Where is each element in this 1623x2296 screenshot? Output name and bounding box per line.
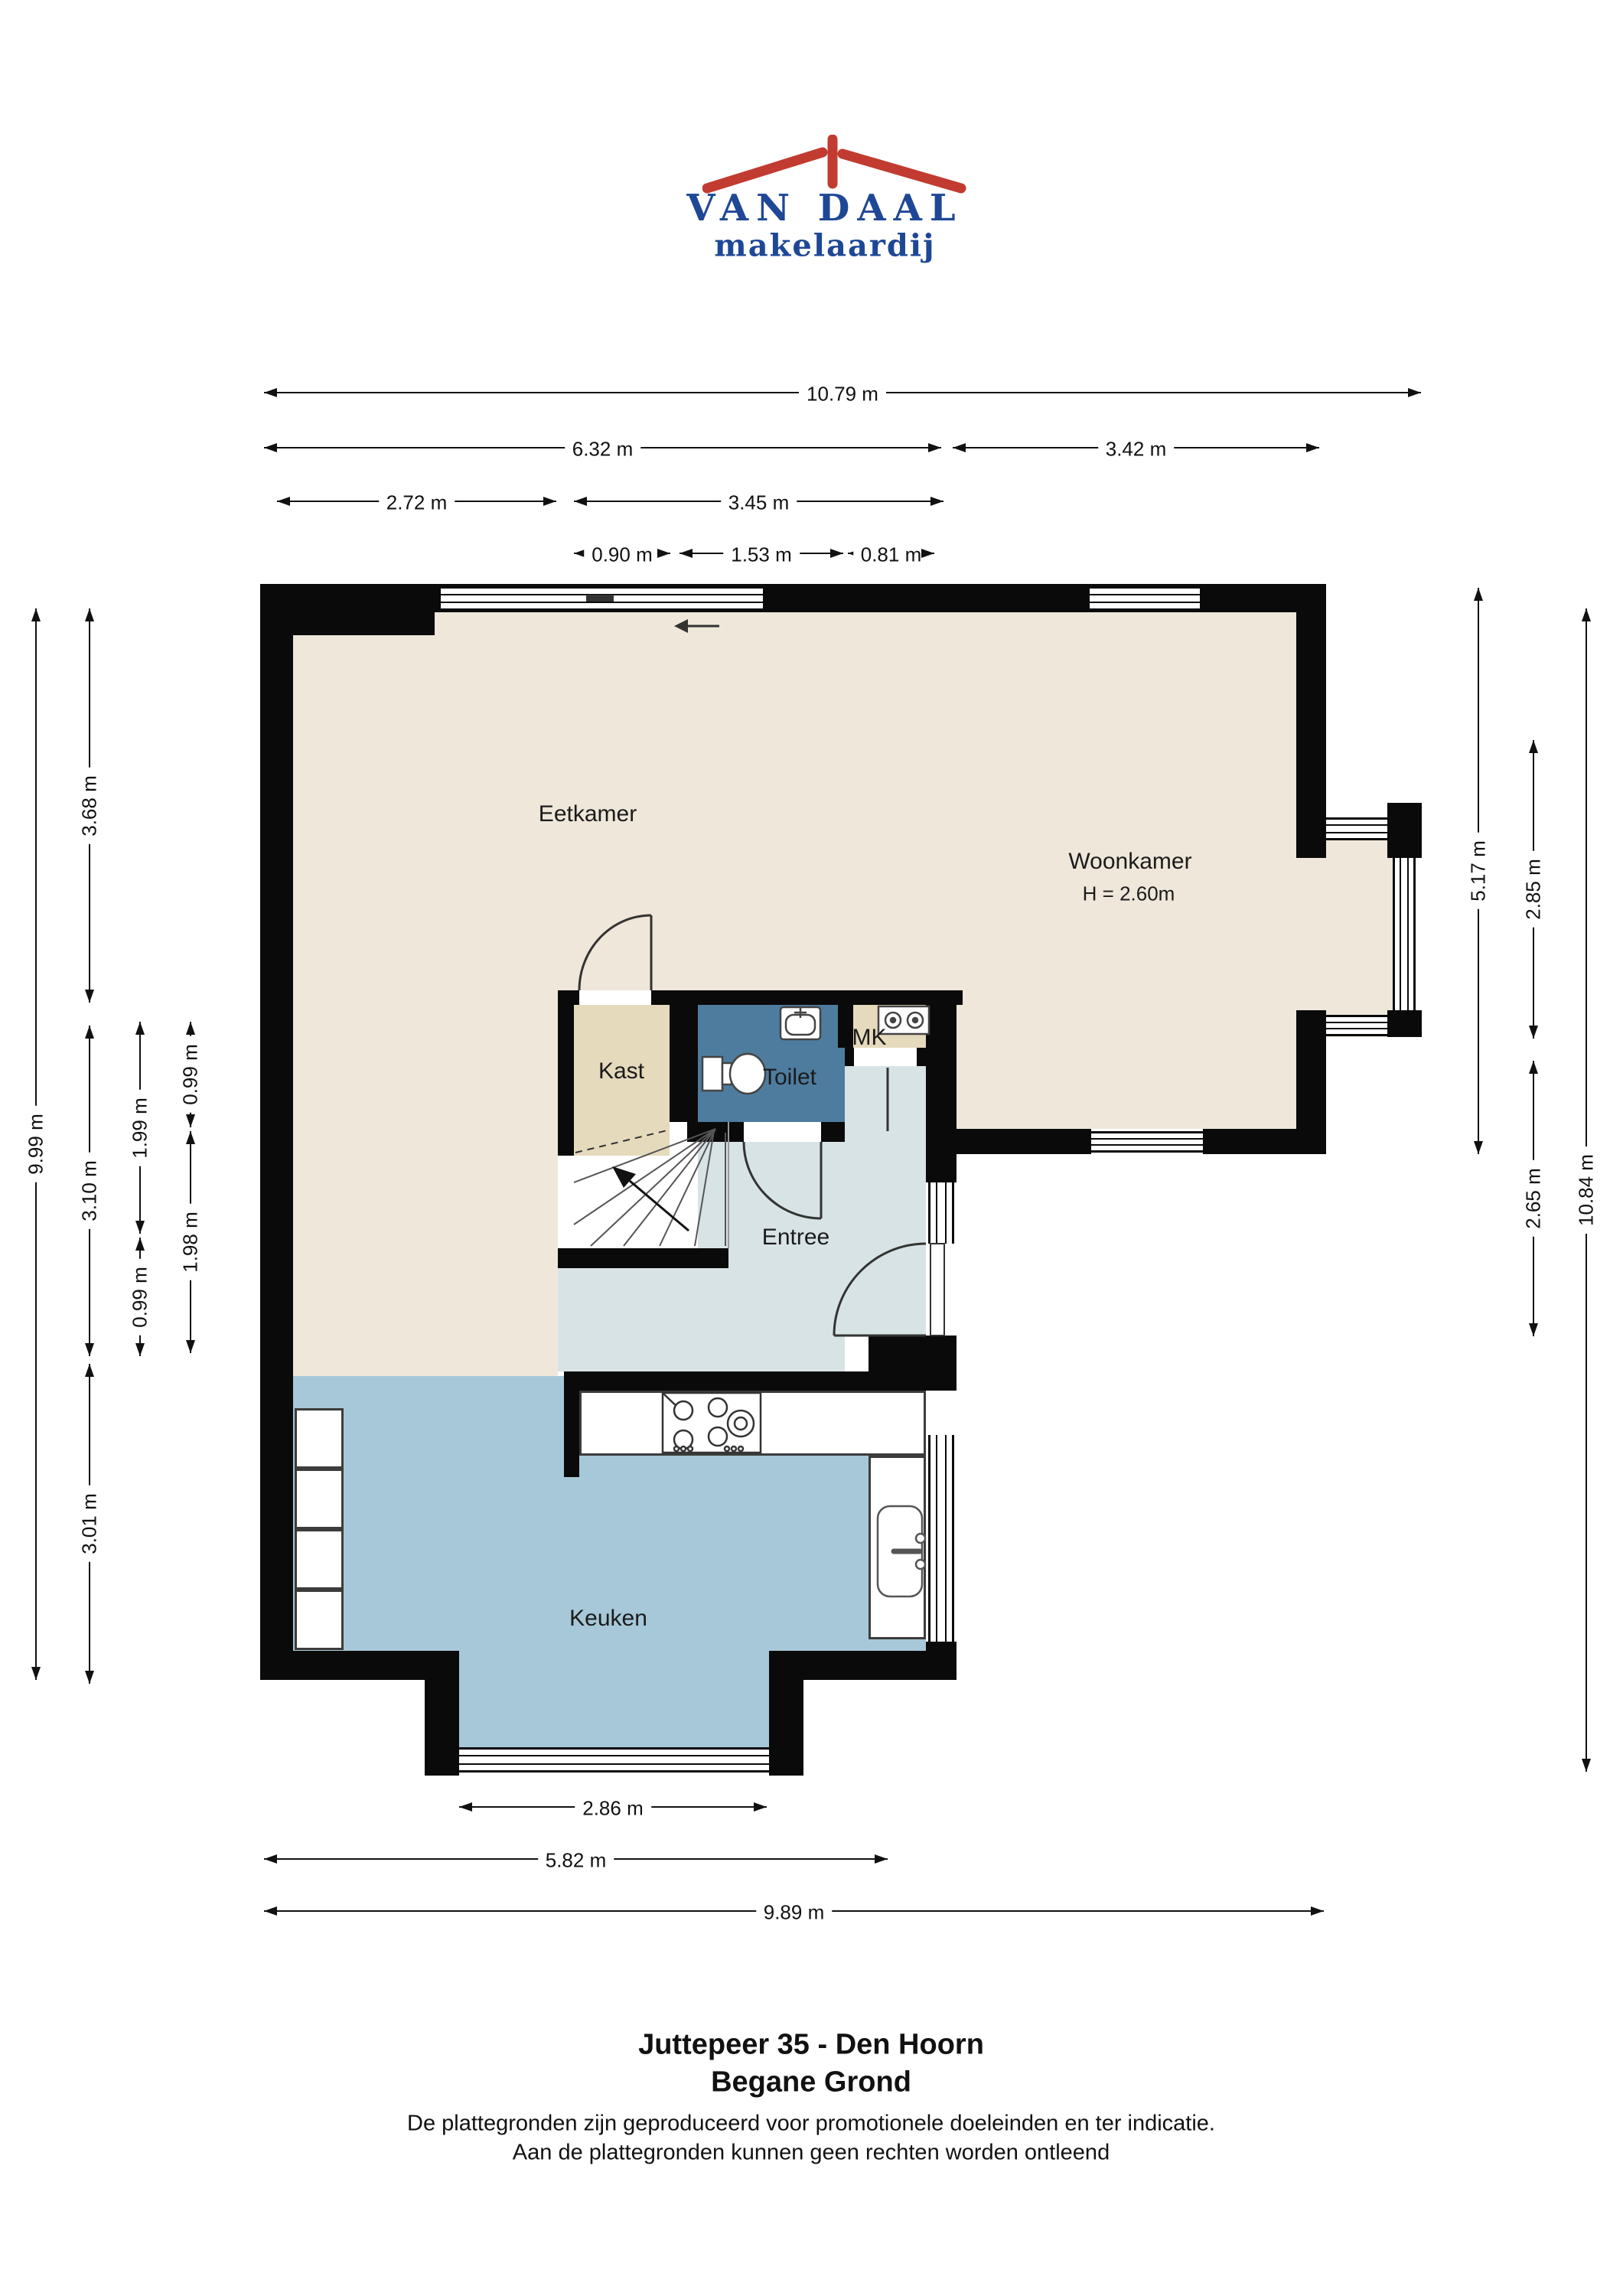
floor-woonkamer-lower [957,990,1296,1129]
dim-top-left: 6.32 m [264,447,941,448]
window-top-sliding-door [441,586,763,611]
wall-bay-corner-bottom [1387,1010,1422,1037]
dim-left-mid: 3.10 m [89,1026,90,1356]
wall-toilet-bottom-b [821,1122,845,1142]
wall-bay-corner-top [1387,803,1422,858]
dim-inner-right-bottom-label: 1.98 m [178,1204,204,1280]
dim-bottom-mid: 5.82 m [264,1858,888,1860]
dim-left-total: 9.99 m [35,608,37,1680]
dim-right-upper: 2.85 m [1533,740,1534,1039]
plan-title: Juttepeer 35 - Den Hoorn [638,2029,984,2062]
window-top-right [1090,586,1200,611]
kitchen-cabinet-4 [295,1590,344,1650]
wall-bottom-left [260,1651,459,1680]
wall-toilet-mk-divider [838,1005,853,1048]
window-kitchen-bay [459,1747,769,1773]
dim-toilet-width: 1.53 m [680,553,843,554]
dim-bottom-mid-label: 5.82 m [538,1848,614,1874]
dim-left-total-label: 9.99 m [24,1106,49,1182]
logo-tagline: makelaardij [714,228,935,264]
wall-right-upper [1296,584,1326,858]
dim-toilet-width-label: 1.53 m [723,543,800,568]
dim-kast-width-label: 0.90 m [584,543,660,568]
window-entree-sidelight [928,1182,954,1244]
wall-entree-right-upper [926,990,957,1182]
plan-subtitle: Begane Grond [711,2066,911,2099]
wall-bottom-right [769,1651,957,1680]
dim-inner-left-top: 1.99 m [139,1022,141,1234]
wall-kitchen-top [564,1371,957,1391]
dim-inner-left-bottom: 0.99 m [139,1238,141,1356]
wall-kitchenbay-stub-left [425,1680,459,1776]
dim-inner-right-bottom: 1.98 m [190,1131,191,1353]
wall-kast-left [558,990,574,1156]
dim-bottom-total: 9.89 m [264,1910,1324,1912]
dim-left-bottom-label: 3.01 m [77,1486,103,1562]
floor-plan: VAN DAAL makelaardij [0,0,1623,2296]
dim-middle-width-label: 3.45 m [721,491,797,516]
dim-right-top: 5.17 m [1478,588,1479,1154]
dim-top-total-label: 10.79 m [799,382,886,407]
dim-bottom-bay-label: 2.86 m [575,1796,651,1821]
floor-keuken-bay [459,1651,769,1749]
dim-top-total: 10.79 m [264,392,1421,393]
wall-left [260,584,293,1680]
dim-right-total: 10.84 m [1586,608,1587,1772]
window-woonkamer-south [1091,1131,1203,1153]
dim-inner-left-bottom-label: 0.99 m [128,1259,153,1336]
dim-inner-right-top: 0.99 m [190,1022,191,1127]
window-bay-step [1326,817,1387,840]
room-label-entree: Entree [762,1225,829,1251]
wall-entree-se-corner [869,1336,957,1371]
room-label-toilet: Toilet [763,1065,816,1091]
floor-entree-right [845,1066,926,1336]
window-bay-side [1393,858,1416,1010]
kitchen-cabinet-2 [295,1469,344,1529]
dim-right-lower-label: 2.65 m [1521,1160,1546,1237]
room-label-mk: MK [852,1025,887,1051]
kitchen-cabinet-1 [295,1408,344,1469]
dim-right-top-label: 5.17 m [1466,833,1491,909]
disclaimer-line-1: De plattegronden zijn geproduceerd voor … [407,2112,1215,2137]
wall-stairs-bottom [558,1248,728,1268]
dim-right-upper-label: 2.85 m [1521,851,1546,928]
room-label-woonkamer: Woonkamer [1068,849,1191,875]
room-label-woonkamer-height: H = 2.60m [1083,882,1175,906]
dim-bottom-bay: 2.86 m [459,1806,767,1808]
kitchen-cabinet-3 [295,1529,344,1590]
wall-woonkamer-bottom-right [1203,1129,1326,1154]
window-bay-bottom [1326,1015,1387,1036]
dim-top-right-label: 3.42 m [1098,437,1175,462]
dim-top-right: 3.42 m [953,447,1319,448]
floor-living-main [293,612,1296,990]
logo-name: VAN DAAL [686,187,963,230]
dim-middle-width: 3.45 m [574,501,943,502]
floor-toilet [698,1005,845,1122]
dim-left-mid-label: 3.10 m [77,1153,103,1229]
wall-toilet-left [670,1005,698,1122]
dim-eetkamer-width-label: 2.72 m [379,491,455,516]
wall-mk-bottom-b [917,1048,926,1066]
dim-top-left-label: 6.32 m [565,437,641,462]
floor-entree-left [558,1268,698,1371]
room-label-keuken: Keuken [569,1606,647,1632]
kitchen-counter-top [579,1391,926,1456]
wall-block-top-b [651,990,963,1005]
dim-right-total-label: 10.84 m [1574,1146,1599,1234]
wall-kitchenbay-stub-right [769,1680,803,1776]
disclaimer-line-2: Aan de plattegronden kunnen geen rechten… [513,2141,1110,2166]
dim-kast-width: 0.90 m [574,553,670,554]
room-label-eetkamer: Eetkamer [539,801,637,827]
dim-inner-right-top-label: 0.99 m [178,1036,204,1113]
floor-eetkamer-lower [293,990,558,1376]
dim-left-top: 3.68 m [89,608,90,1003]
wall-toilet-bottom-a [687,1122,744,1142]
dim-left-bottom: 3.01 m [89,1364,90,1684]
dim-mk-width: 0.81 m [848,553,934,554]
room-label-kast: Kast [598,1058,644,1084]
dim-bottom-total-label: 9.89 m [756,1900,833,1926]
dim-eetkamer-width: 2.72 m [277,501,556,502]
window-kitchen-east [928,1435,954,1642]
dim-inner-left-top-label: 1.99 m [128,1090,153,1166]
kitchen-counter-right [869,1456,926,1639]
dim-mk-width-label: 0.81 m [853,543,930,568]
dim-right-lower: 2.65 m [1533,1061,1534,1336]
dim-left-top-label: 3.68 m [77,768,103,844]
